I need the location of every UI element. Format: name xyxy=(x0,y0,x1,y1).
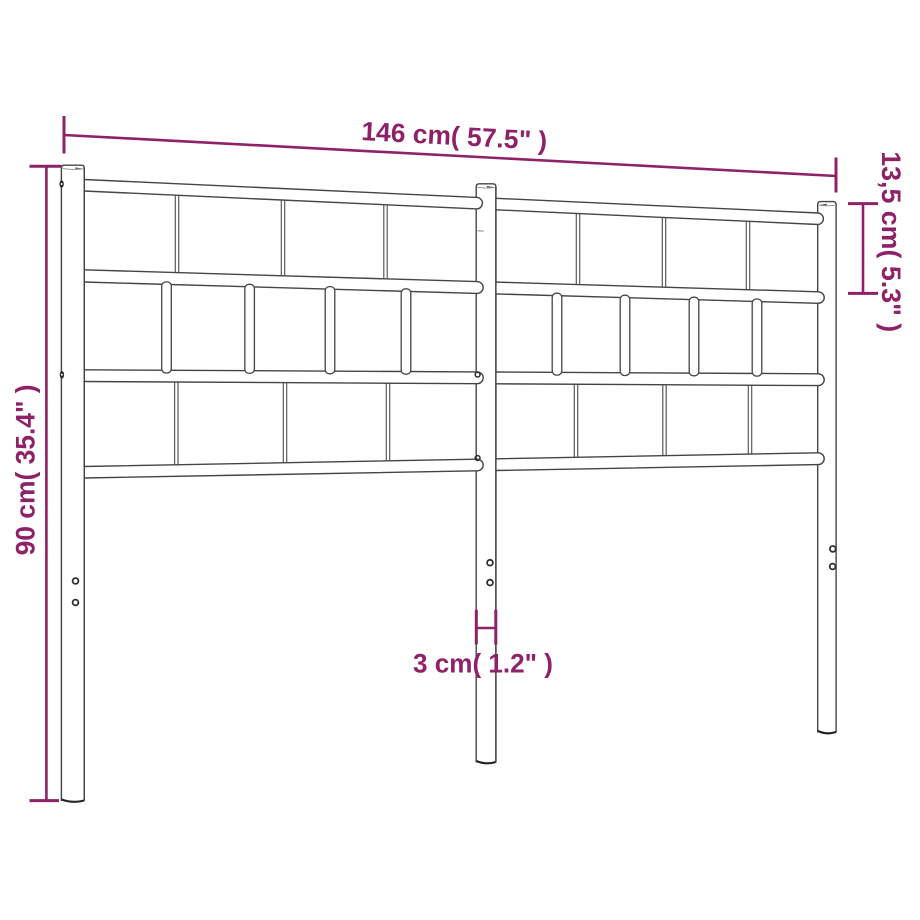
svg-text:90 cm( 35.4" ): 90 cm( 35.4" ) xyxy=(11,384,41,555)
svg-text:13,5 cm( 5.3" ): 13,5 cm( 5.3" ) xyxy=(876,151,906,332)
svg-text:3 cm( 1.2" ): 3 cm( 1.2" ) xyxy=(413,649,553,679)
